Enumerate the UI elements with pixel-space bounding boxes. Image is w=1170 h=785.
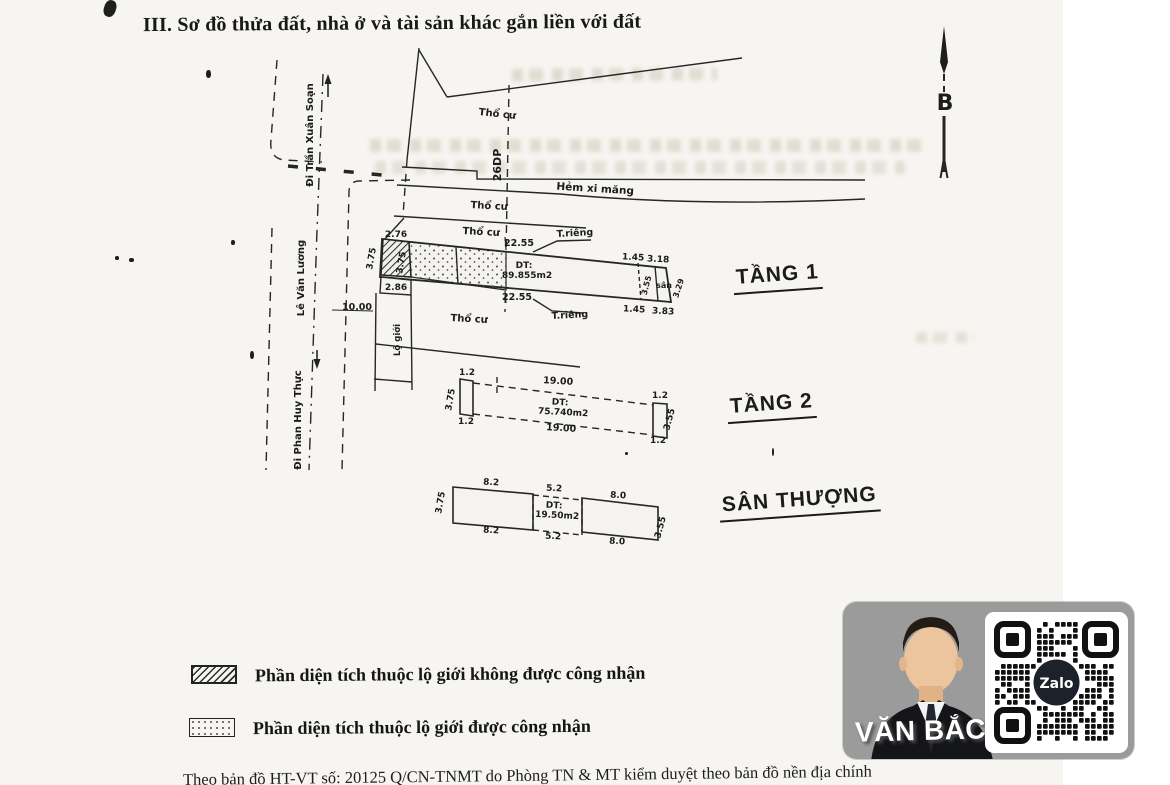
svg-text:5.2: 5.2 bbox=[546, 484, 562, 495]
label-san: sân bbox=[656, 281, 672, 290]
street-boundary-dashed bbox=[266, 228, 272, 470]
svg-text:1.2: 1.2 bbox=[650, 436, 666, 446]
boundary-line bbox=[407, 48, 419, 160]
svg-text:8.2: 8.2 bbox=[483, 478, 499, 489]
floor2-title: TẦNG 2 bbox=[726, 389, 817, 424]
svg-text:3.75: 3.75 bbox=[444, 388, 458, 412]
svg-text:19.50m2: 19.50m2 bbox=[535, 510, 580, 522]
zalo-logo-label: Zalo bbox=[1039, 676, 1073, 692]
svg-text:22.55: 22.55 bbox=[502, 292, 532, 303]
label-lo-gioi: Lộ giới bbox=[392, 324, 403, 356]
label-t-rieng-bottom: T.riêng bbox=[551, 309, 588, 322]
svg-text:3.18: 3.18 bbox=[647, 254, 670, 265]
roof-mid-dashed-top bbox=[533, 495, 582, 500]
agent-name: VĂN BẮC bbox=[855, 713, 987, 748]
svg-text:89.855m2: 89.855m2 bbox=[502, 271, 552, 281]
leader-line bbox=[533, 240, 591, 252]
agent-watermark-badge: VĂN BẮC Zalo bbox=[843, 602, 1134, 759]
boundary-line bbox=[394, 216, 586, 228]
roof-left-box bbox=[453, 487, 533, 530]
svg-text:8.0: 8.0 bbox=[610, 491, 626, 502]
boundary-line bbox=[447, 58, 742, 97]
legend-item-2: Phần diện tích thuộc lộ giới được công n… bbox=[189, 717, 591, 738]
svg-text:19.00: 19.00 bbox=[543, 375, 574, 388]
svg-text:DT:: DT: bbox=[516, 261, 533, 271]
legend-item-1-label: Phần diện tích thuộc lộ giới không được … bbox=[255, 663, 645, 687]
hatched-swatch bbox=[191, 665, 237, 684]
zalo-qr-code: Zalo bbox=[985, 612, 1128, 753]
street-phan-huy-thuc: Đi Phan Huy Thực bbox=[293, 370, 304, 470]
svg-text:1.2: 1.2 bbox=[652, 391, 668, 401]
street-tran-xuan-soan: Đi Trần Xuân Soạn bbox=[304, 83, 316, 186]
svg-text:1.45: 1.45 bbox=[622, 252, 645, 263]
svg-text:3.29: 3.29 bbox=[671, 277, 686, 299]
label-tho-cu-3: Thổ cư bbox=[462, 224, 501, 239]
label-tho-cu-1: Thổ cư bbox=[478, 105, 517, 122]
alley-line-upper bbox=[402, 167, 865, 180]
legend-item-1: Phần diện tích thuộc lộ giới không được … bbox=[191, 664, 645, 685]
svg-text:8.0: 8.0 bbox=[609, 537, 625, 548]
street-dash-marks bbox=[288, 166, 382, 175]
svg-text:5.2: 5.2 bbox=[545, 532, 561, 543]
svg-text:3.75: 3.75 bbox=[434, 491, 448, 515]
boundary-line bbox=[419, 50, 447, 97]
boundary-line-dashed bbox=[403, 160, 407, 216]
svg-text:3.75: 3.75 bbox=[365, 247, 379, 271]
dim-street-width: 10.00 bbox=[342, 302, 372, 313]
svg-text:19.00: 19.00 bbox=[546, 422, 577, 435]
svg-text:2.76: 2.76 bbox=[385, 230, 407, 240]
svg-text:1.2: 1.2 bbox=[458, 417, 474, 427]
svg-text:8.2: 8.2 bbox=[483, 526, 499, 537]
label-t-rieng-top: T.riêng bbox=[556, 227, 593, 240]
svg-text:1.45: 1.45 bbox=[623, 304, 646, 315]
dotted-swatch bbox=[189, 718, 235, 737]
label-tho-cu-4: Thổ cư bbox=[450, 311, 489, 326]
legend-item-2-label: Phần diện tích thuộc lộ giới được công n… bbox=[253, 716, 591, 739]
floor1-title: TẦNG 1 bbox=[732, 260, 823, 295]
svg-text:3.83: 3.83 bbox=[652, 306, 675, 317]
svg-text:75.740m2: 75.740m2 bbox=[538, 407, 589, 420]
floor2-left-box bbox=[460, 379, 473, 416]
svg-text:1.2: 1.2 bbox=[459, 368, 475, 378]
arrow-down-phan-huy-thuc bbox=[314, 350, 321, 369]
scanned-cadastral-page: III. Sơ đồ thửa đất, nhà ở và tài sản kh… bbox=[0, 0, 1170, 785]
roof-right-box bbox=[582, 498, 658, 540]
arrow-up-tran-xuan-soan bbox=[325, 74, 332, 97]
street-le-van-luong: Lê Văn Lương bbox=[295, 240, 307, 316]
compass-label: B bbox=[937, 91, 954, 116]
svg-text:2.86: 2.86 bbox=[385, 283, 407, 293]
label-tho-cu-2: Thổ cư bbox=[470, 198, 509, 213]
label-26dp: 26DP bbox=[491, 149, 504, 182]
svg-text:22.55: 22.55 bbox=[504, 238, 534, 249]
boundary-line bbox=[376, 344, 580, 367]
